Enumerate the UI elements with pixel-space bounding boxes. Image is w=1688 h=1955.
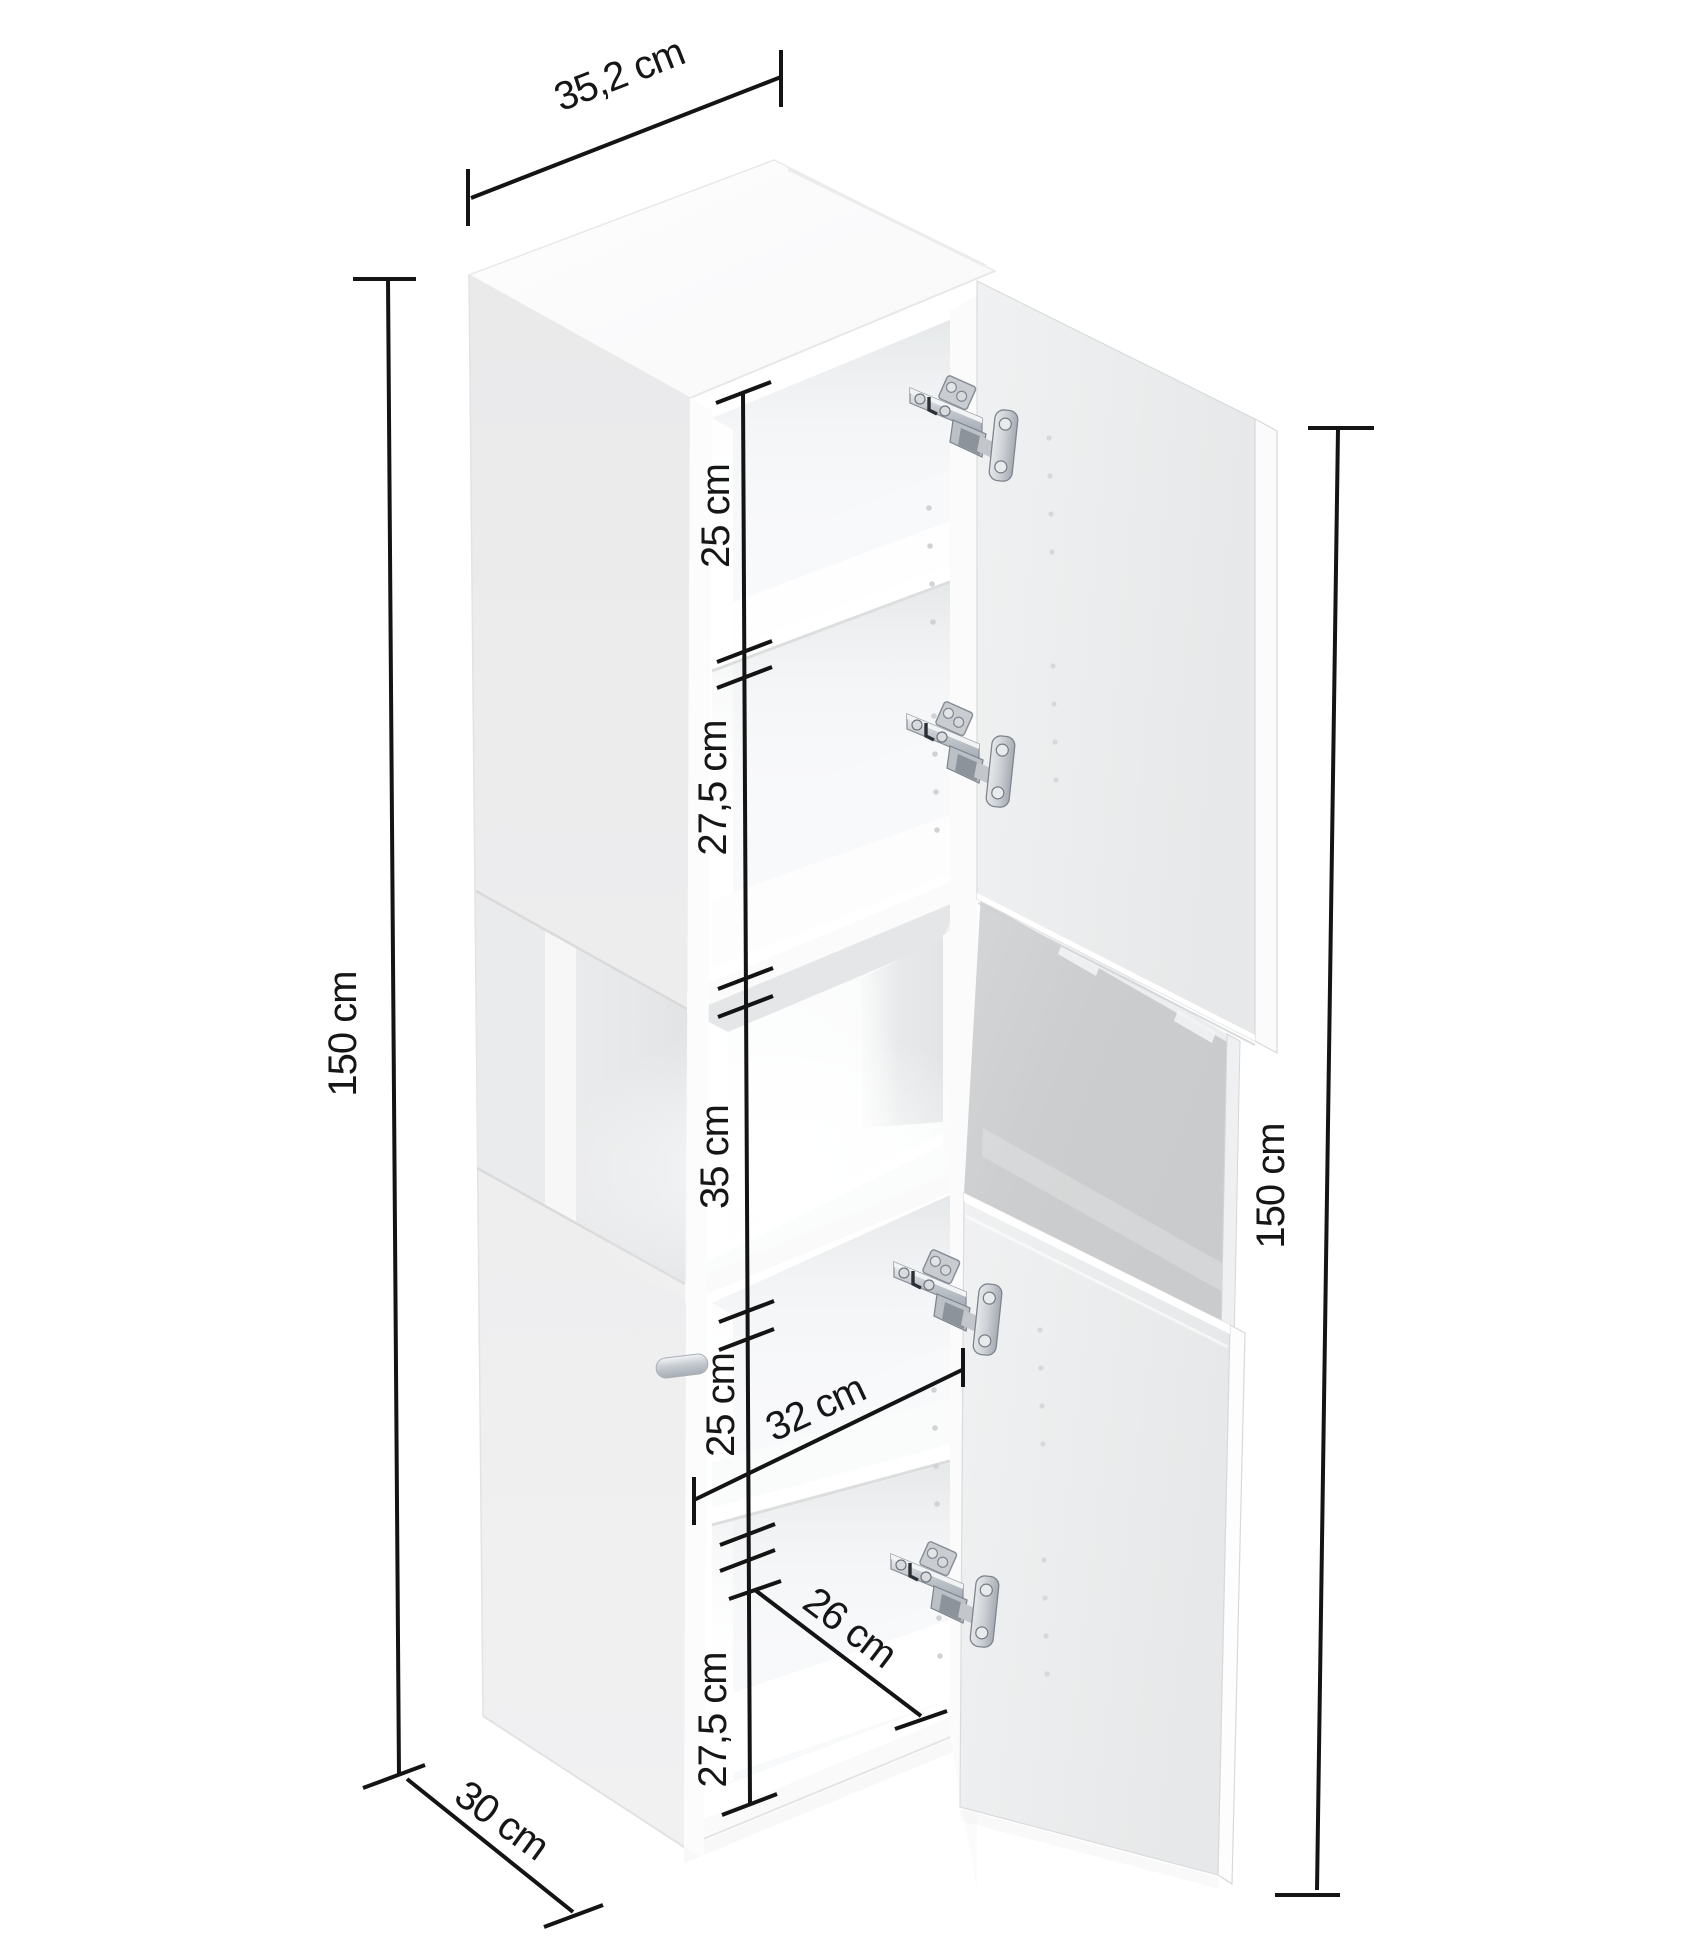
svg-text:25 cm: 25 cm (699, 1353, 743, 1457)
svg-text:150 cm: 150 cm (1249, 1123, 1293, 1248)
svg-text:27,5 cm: 27,5 cm (691, 1652, 735, 1787)
svg-text:35 cm: 35 cm (693, 1105, 737, 1209)
svg-text:27,5 cm: 27,5 cm (691, 720, 735, 855)
svg-text:150 cm: 150 cm (321, 971, 365, 1096)
svg-text:25 cm: 25 cm (694, 464, 738, 568)
